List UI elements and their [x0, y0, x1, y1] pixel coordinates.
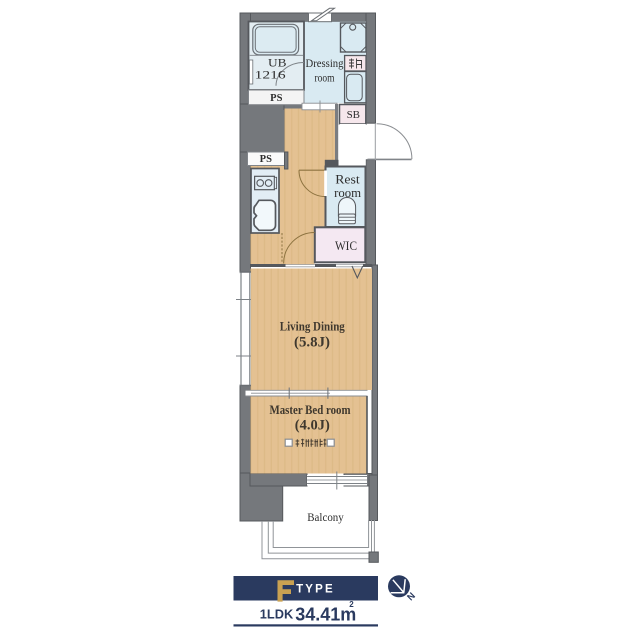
svg-text:2: 2: [349, 600, 354, 609]
svg-text:Rest: Rest: [335, 173, 360, 187]
svg-text:WIC: WIC: [335, 239, 357, 253]
svg-text:1216: 1216: [255, 68, 286, 82]
svg-text:(4.0J): (4.0J): [295, 418, 330, 434]
svg-text:Dressing: Dressing: [306, 56, 344, 70]
svg-text:room: room: [315, 71, 336, 85]
svg-text:(5.8J): (5.8J): [294, 335, 330, 351]
svg-text:1LDK: 1LDK: [260, 607, 294, 622]
svg-text:TYPE: TYPE: [296, 584, 335, 596]
svg-text:34.41m: 34.41m: [295, 604, 356, 624]
svg-text:N: N: [405, 591, 418, 604]
svg-text:SB: SB: [347, 109, 360, 121]
svg-text:PS: PS: [270, 93, 282, 104]
svg-text:Balcony: Balcony: [307, 510, 344, 524]
svg-text:Living Dining: Living Dining: [280, 320, 346, 334]
svg-text:room: room: [334, 186, 361, 200]
svg-text:Master Bed room: Master Bed room: [270, 403, 351, 417]
svg-text:PS: PS: [260, 154, 272, 165]
